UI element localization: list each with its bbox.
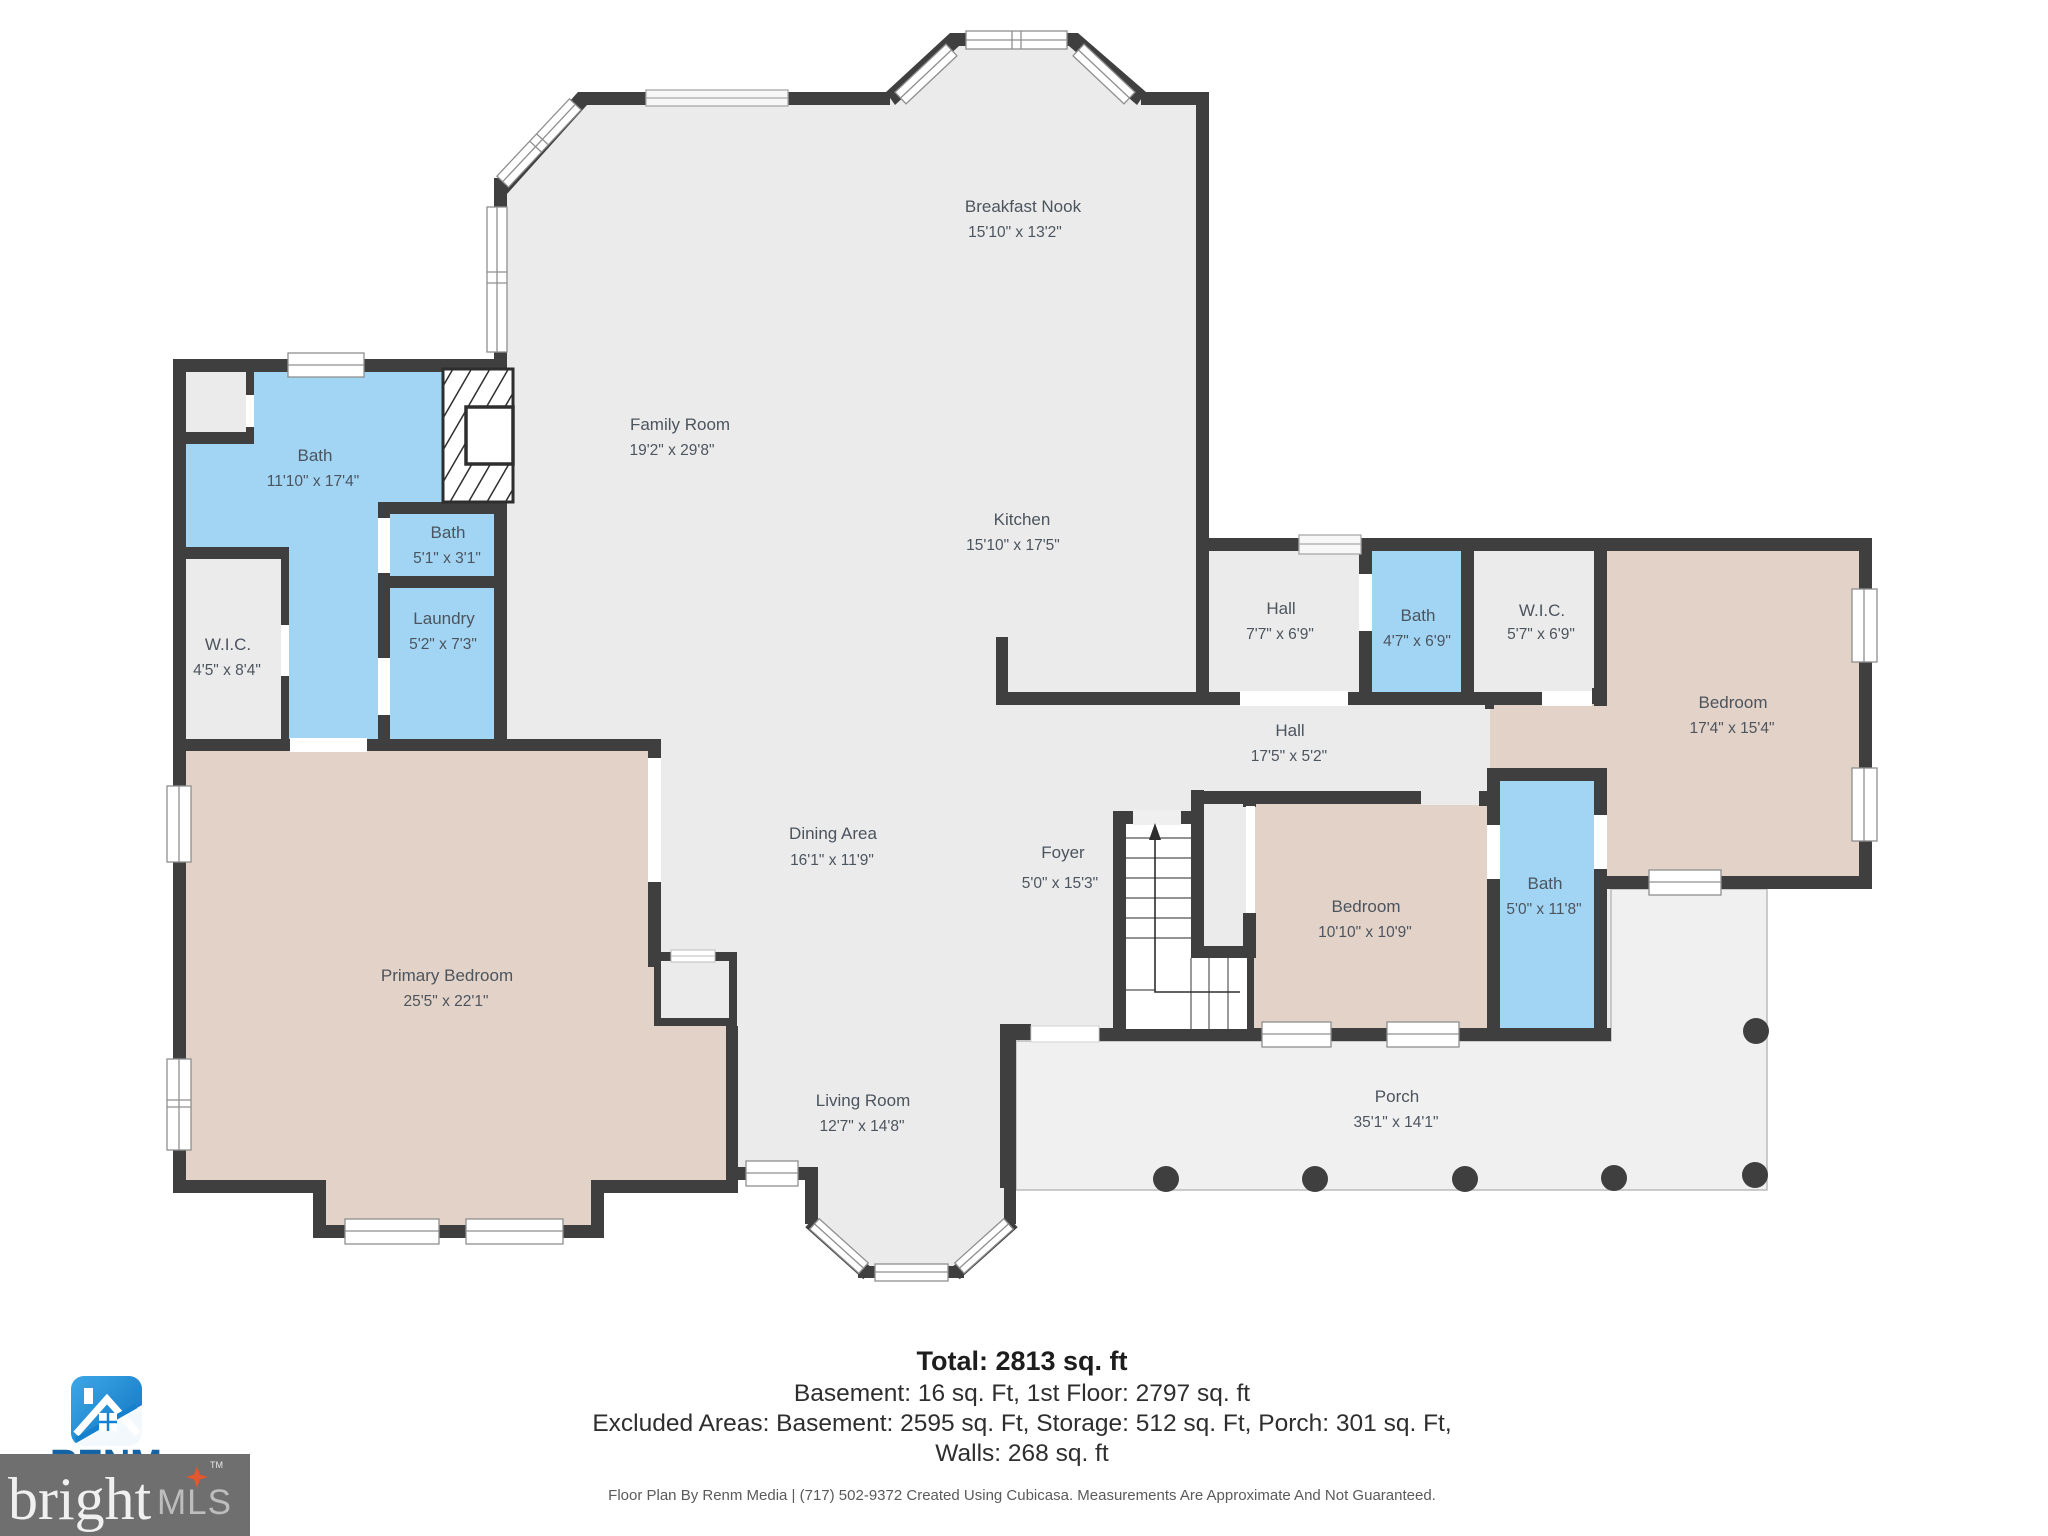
svg-text:19'2" x 29'8": 19'2" x 29'8" [629, 442, 714, 459]
svg-text:Family Room: Family Room [630, 415, 730, 434]
svg-text:Floor Plan By Renm Media | (: Floor Plan By Renm Media | (717) 502-937… [608, 1487, 1436, 1504]
svg-text:Excluded Areas: Basement: 2595: Excluded Areas: Basement: 2595 sq. Ft, S… [592, 1410, 1451, 1437]
svg-text:Hall: Hall [1275, 721, 1304, 740]
svg-text:16'1" x 11'9": 16'1" x 11'9" [790, 852, 874, 869]
svg-text:5'2" x 7'3": 5'2" x 7'3" [409, 636, 477, 653]
svg-text:Breakfast Nook: Breakfast Nook [965, 197, 1082, 216]
svg-text:Living Room: Living Room [816, 1091, 911, 1110]
svg-text:bright: bright [8, 1466, 152, 1532]
svg-text:Hall: Hall [1266, 599, 1295, 618]
svg-text:Bath: Bath [1528, 874, 1563, 893]
svg-text:Kitchen: Kitchen [994, 510, 1051, 529]
svg-text:15'10" x 13'2": 15'10" x 13'2" [968, 224, 1062, 241]
svg-text:Foyer: Foyer [1041, 843, 1085, 862]
svg-text:Basement: 16 sq. Ft, 1st Floor: Basement: 16 sq. Ft, 1st Floor: 2797 sq.… [794, 1380, 1250, 1407]
svg-text:W.I.C.: W.I.C. [205, 635, 251, 654]
svg-text:17'4" x 15'4": 17'4" x 15'4" [1689, 720, 1774, 737]
svg-text:5'1" x 3'1": 5'1" x 3'1" [413, 550, 481, 567]
svg-text:Dining Area: Dining Area [789, 824, 877, 843]
svg-text:Walls: 268 sq. ft: Walls: 268 sq. ft [935, 1440, 1109, 1467]
svg-text:W.I.C.: W.I.C. [1519, 601, 1565, 620]
svg-text:Primary Bedroom: Primary Bedroom [381, 966, 513, 985]
svg-text:Laundry: Laundry [413, 609, 475, 628]
svg-text:35'1" x 14'1": 35'1" x 14'1" [1353, 1114, 1438, 1131]
svg-text:MLS: MLS [157, 1483, 232, 1522]
svg-text:15'10" x 17'5": 15'10" x 17'5" [966, 537, 1060, 554]
svg-text:10'10" x 10'9": 10'10" x 10'9" [1318, 924, 1412, 941]
svg-text:Total: 2813 sq. ft: Total: 2813 sq. ft [916, 1346, 1127, 1376]
svg-text:Bedroom: Bedroom [1699, 693, 1768, 712]
svg-text:TM: TM [210, 1460, 223, 1470]
svg-text:5'7" x 6'9": 5'7" x 6'9" [1507, 626, 1575, 643]
svg-text:Bedroom: Bedroom [1332, 897, 1401, 916]
svg-text:7'7" x 6'9": 7'7" x 6'9" [1246, 626, 1314, 643]
svg-text:5'0" x 15'3": 5'0" x 15'3" [1022, 875, 1098, 892]
svg-text:11'10" x 17'4": 11'10" x 17'4" [267, 473, 359, 490]
svg-text:12'7" x 14'8": 12'7" x 14'8" [819, 1118, 904, 1135]
svg-text:17'5" x 5'2": 17'5" x 5'2" [1251, 748, 1327, 765]
svg-text:Bath: Bath [298, 446, 333, 465]
svg-text:Bath: Bath [431, 523, 466, 542]
svg-text:5'0" x 11'8": 5'0" x 11'8" [1506, 901, 1581, 918]
svg-text:Porch: Porch [1375, 1087, 1419, 1106]
svg-text:4'5" x 8'4": 4'5" x 8'4" [193, 662, 261, 679]
svg-text:25'5" x 22'1": 25'5" x 22'1" [403, 993, 488, 1010]
svg-text:Bath: Bath [1401, 606, 1436, 625]
svg-text:4'7" x 6'9": 4'7" x 6'9" [1383, 633, 1451, 650]
